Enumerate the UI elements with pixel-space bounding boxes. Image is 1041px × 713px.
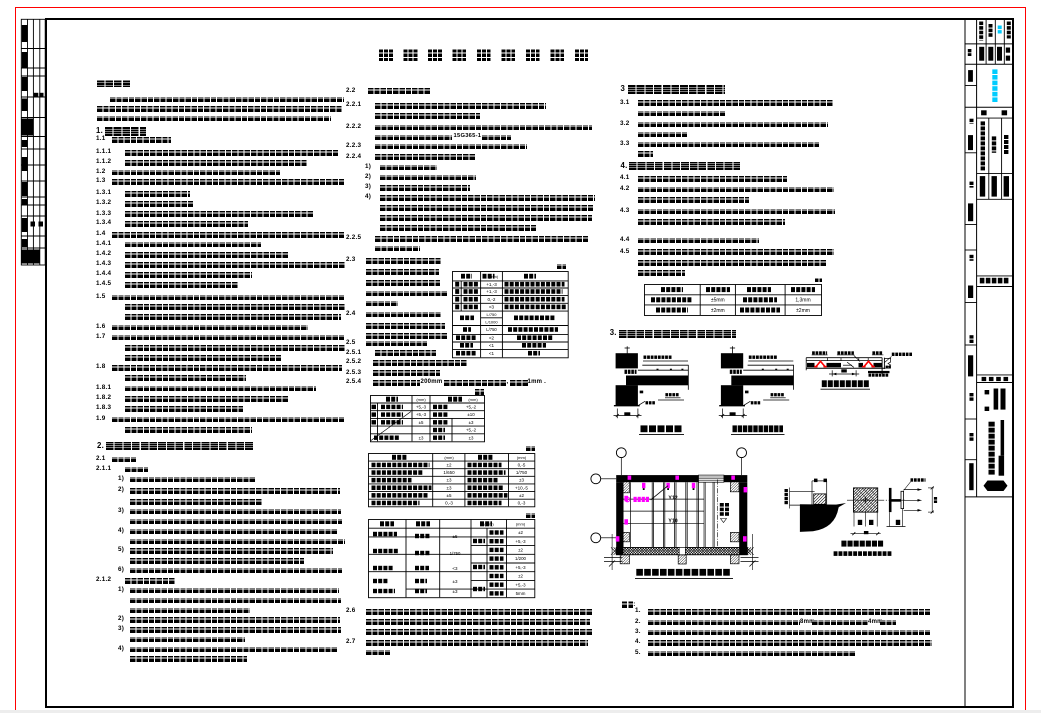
svg-text:±2: ±2	[519, 493, 524, 498]
svg-text:L/1000: L/1000	[485, 319, 498, 324]
svg-text:+10,-5: +10,-5	[515, 485, 528, 490]
svg-text:5mm: 5mm	[516, 591, 526, 596]
svg-text:+5,-3: +5,-3	[416, 412, 427, 417]
svg-text:0,-5: 0,-5	[518, 462, 526, 467]
svg-text:±3: ±3	[519, 477, 524, 482]
svg-text:+1,-3: +1,-3	[486, 281, 497, 286]
svg-text:<1: <1	[488, 350, 494, 355]
svg-text:L/750: L/750	[486, 327, 497, 332]
svg-text:0,-2: 0,-2	[487, 296, 495, 301]
svg-text:+5,-3: +5,-3	[515, 582, 526, 587]
svg-text:L/750: L/750	[486, 312, 497, 317]
svg-text:1/200: 1/200	[515, 556, 527, 561]
svg-text:(mm): (mm)	[489, 273, 499, 278]
svg-text:(mm): (mm)	[516, 521, 526, 526]
svg-text:±3: ±3	[453, 579, 458, 584]
svg-text:+5,-2: +5,-2	[466, 405, 477, 410]
svg-text:+5,-2: +5,-2	[466, 428, 477, 433]
svg-text:+5,-3: +5,-3	[416, 405, 427, 410]
svg-text:±2: ±2	[447, 462, 452, 467]
svg-text:+5,-3: +5,-3	[515, 565, 526, 570]
svg-text:<1: <1	[488, 343, 494, 348]
svg-text:1/650: 1/650	[443, 470, 455, 475]
svg-text:±2: ±2	[518, 530, 523, 535]
svg-text:1,3mm: 1,3mm	[795, 297, 810, 303]
svg-text:±3: ±3	[447, 477, 452, 482]
svg-text:(mm): (mm)	[416, 397, 426, 402]
svg-text:<2: <2	[488, 335, 494, 340]
svg-text:±3: ±3	[469, 435, 474, 440]
svg-text:±3: ±3	[469, 420, 474, 425]
svg-text:Y12: Y12	[668, 496, 677, 502]
svg-text:1/750: 1/750	[516, 470, 528, 475]
svg-text:+1,-3: +1,-3	[486, 289, 497, 294]
svg-text:±10: ±10	[467, 412, 475, 417]
svg-text:±2: ±2	[518, 573, 523, 578]
svg-text:±5mm: ±5mm	[711, 297, 725, 303]
svg-text:±3: ±3	[419, 435, 424, 440]
svg-text:(mm): (mm)	[468, 397, 478, 402]
svg-text:±2: ±2	[518, 547, 523, 552]
svg-text:±3: ±3	[453, 589, 458, 594]
svg-text:±5: ±5	[419, 420, 424, 425]
svg-text:±3: ±3	[447, 485, 452, 490]
svg-text:(mm): (mm)	[444, 455, 454, 460]
svg-text:Y10: Y10	[668, 519, 677, 525]
svg-text:<3: <3	[452, 566, 458, 571]
svg-text:±2mm: ±2mm	[711, 307, 725, 313]
svg-text:<3: <3	[488, 304, 494, 309]
svg-text:±2mm: ±2mm	[796, 307, 810, 313]
svg-text:1/750: 1/750	[450, 551, 461, 556]
svg-text:(mm): (mm)	[517, 455, 527, 460]
svg-text:+5,-3: +5,-3	[515, 539, 526, 544]
svg-text:±5: ±5	[453, 534, 458, 539]
svg-text:0,-3: 0,-3	[518, 500, 526, 505]
svg-text:±5: ±5	[447, 493, 452, 498]
svg-text:0,-3: 0,-3	[445, 500, 453, 505]
